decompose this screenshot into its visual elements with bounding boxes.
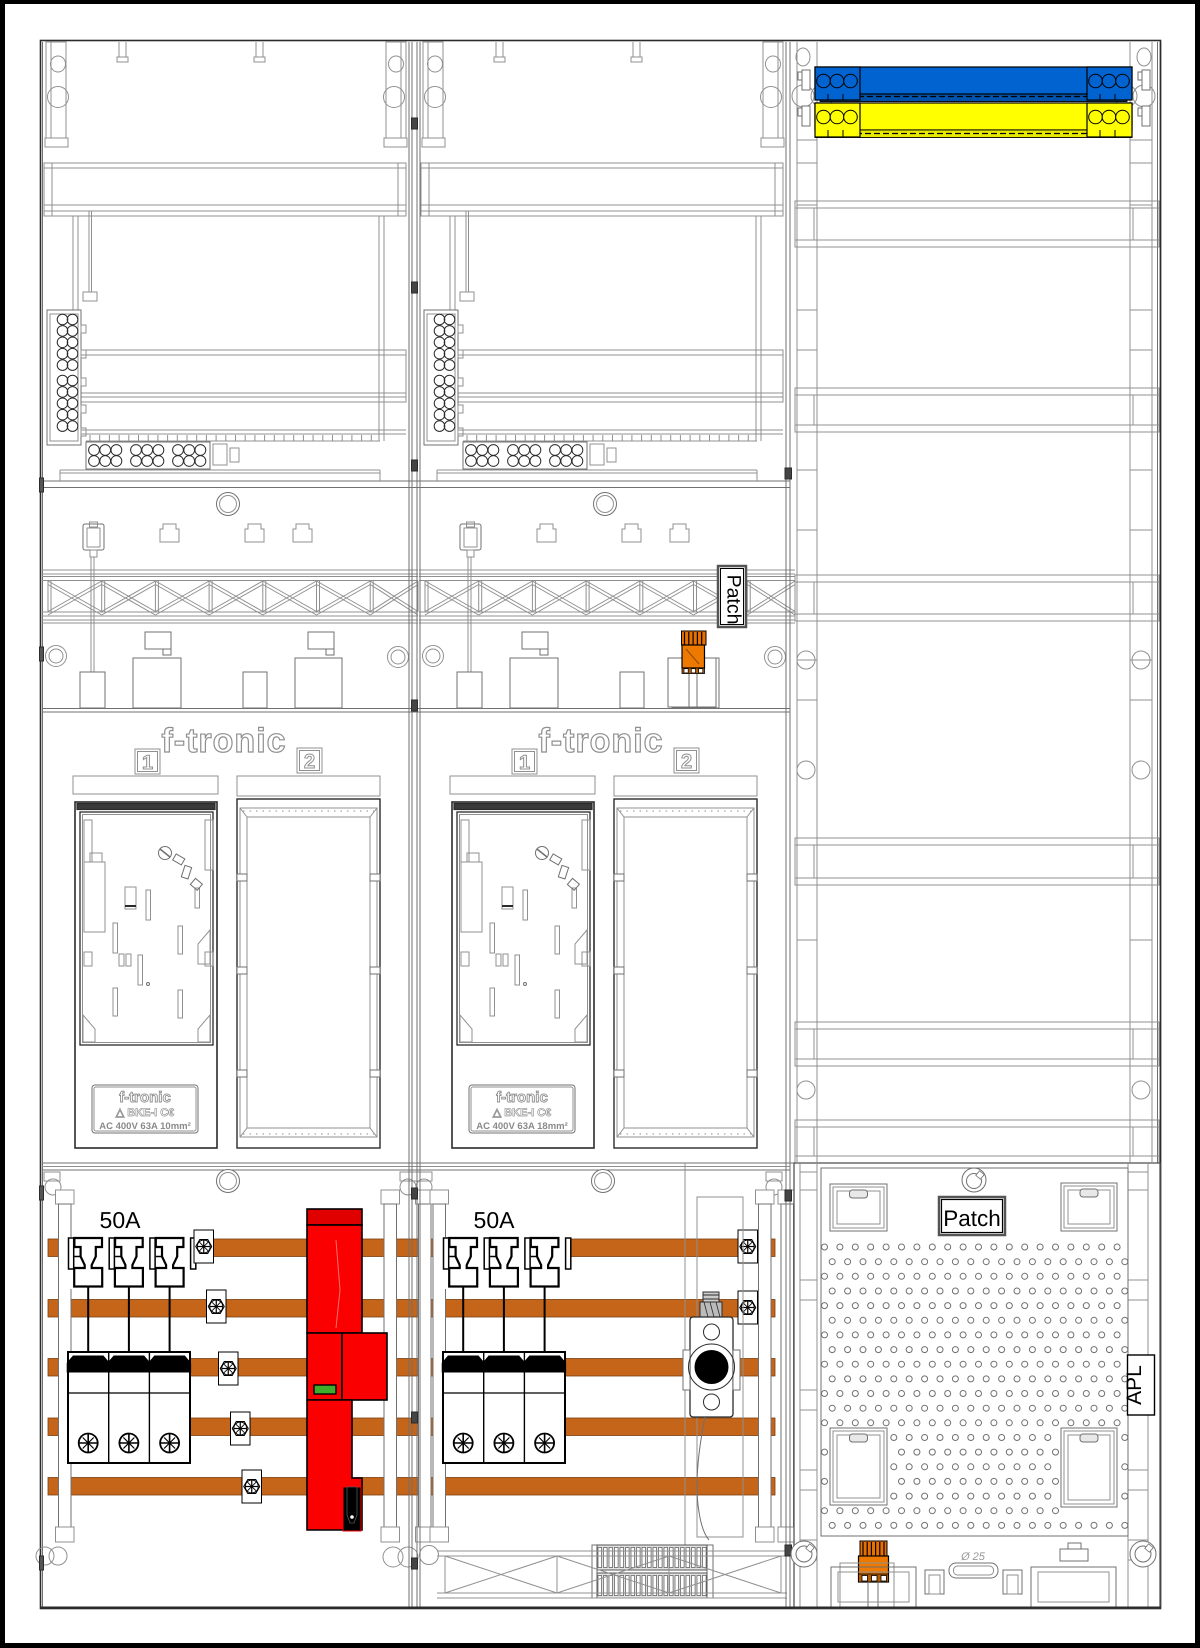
svg-text:△ BKE-I C€: △ BKE-I C€ xyxy=(115,1107,175,1119)
svg-text:1: 1 xyxy=(142,752,153,774)
svg-text:AC 400V 63A 18mm²: AC 400V 63A 18mm² xyxy=(476,1121,568,1132)
svg-text:APL: APL xyxy=(1123,1365,1146,1405)
svg-text:50A: 50A xyxy=(100,1207,142,1233)
svg-text:AC 400V 63A 10mm²: AC 400V 63A 10mm² xyxy=(99,1121,191,1132)
svg-text:1: 1 xyxy=(519,752,530,774)
svg-text:Patch: Patch xyxy=(943,1206,1001,1231)
svg-text:Patch: Patch xyxy=(723,575,745,625)
svg-text:f-tronic: f-tronic xyxy=(496,1089,548,1106)
svg-text:△ BKE-I C€: △ BKE-I C€ xyxy=(492,1107,552,1119)
svg-text:f-tronic: f-tronic xyxy=(538,722,663,760)
svg-text:f-tronic: f-tronic xyxy=(161,722,286,760)
svg-text:f-tronic: f-tronic xyxy=(119,1089,171,1106)
svg-text:Ø 25: Ø 25 xyxy=(960,1551,986,1563)
svg-text:2: 2 xyxy=(304,751,315,773)
svg-text:50A: 50A xyxy=(474,1207,516,1233)
svg-text:2: 2 xyxy=(681,751,692,773)
